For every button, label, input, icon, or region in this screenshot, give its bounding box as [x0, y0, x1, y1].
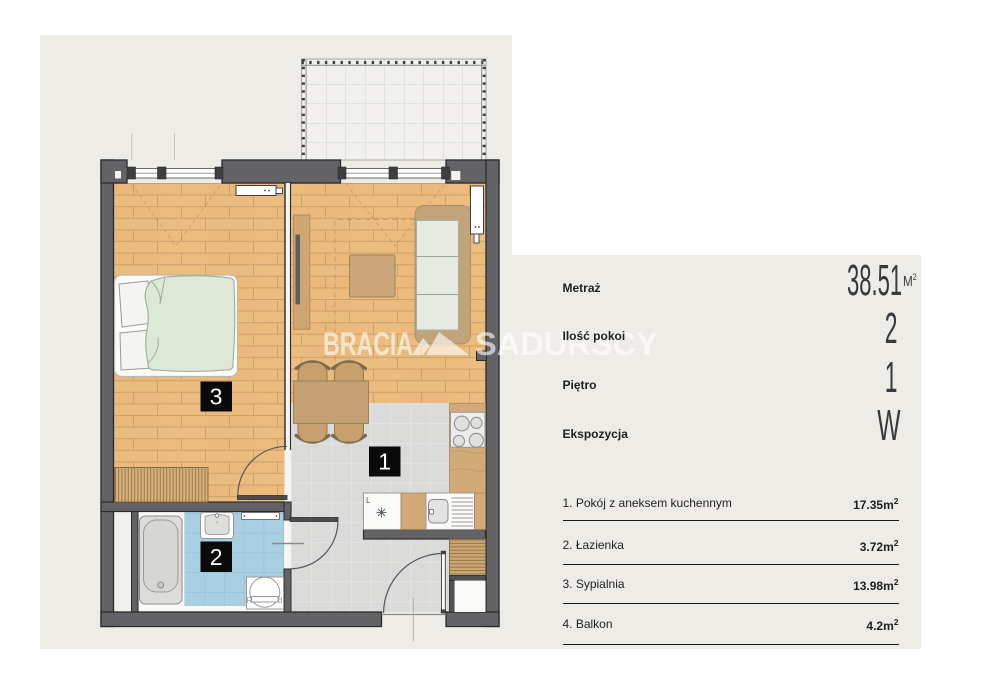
svg-text:3: 3 [210, 384, 223, 410]
svg-text:d: d [278, 596, 282, 605]
svg-text:2: 2 [210, 544, 223, 570]
svg-text:R: R [247, 596, 253, 605]
svg-text:1: 1 [378, 449, 391, 475]
svg-text:L: L [366, 496, 371, 505]
